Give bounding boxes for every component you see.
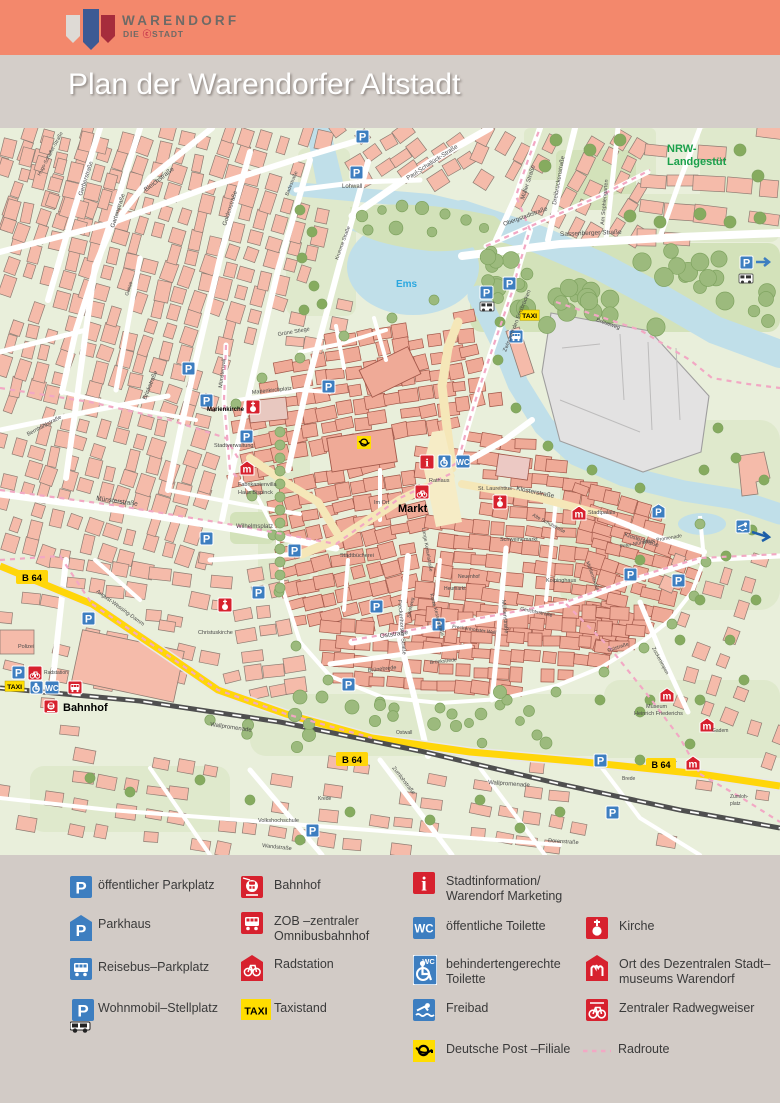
svg-text:Rathaus: Rathaus bbox=[429, 478, 450, 484]
svg-text:Stadtverwaltung: Stadtverwaltung bbox=[214, 443, 253, 449]
svg-text:Kolpinghaus: Kolpinghaus bbox=[546, 578, 577, 584]
svg-text:Stadtbücherei: Stadtbücherei bbox=[340, 553, 374, 559]
svg-text:Wilhelmsplatz: Wilhelmsplatz bbox=[236, 524, 273, 530]
svg-text:P: P bbox=[77, 1002, 88, 1021]
svg-text:Neuenhof: Neuenhof bbox=[458, 574, 480, 580]
svg-text:Krede: Krede bbox=[318, 796, 332, 802]
svg-text:Stadtpalais: Stadtpalais bbox=[588, 510, 615, 516]
svg-text:P: P bbox=[75, 879, 86, 898]
svg-text:Schweinemarkt: Schweinemarkt bbox=[500, 537, 538, 543]
svg-text:Lohwall: Lohwall bbox=[342, 184, 362, 190]
svg-text:TAXI: TAXI bbox=[244, 1006, 267, 1018]
svg-text:P: P bbox=[76, 923, 87, 940]
svg-text:Polizei: Polizei bbox=[18, 644, 34, 650]
svg-text:B 64: B 64 bbox=[22, 573, 43, 584]
svg-text:Marienkirche: Marienkirche bbox=[207, 407, 245, 413]
svg-text:Heinrich Friederichs: Heinrich Friederichs bbox=[634, 711, 683, 717]
svg-text:Fabrikantenvilla: Fabrikantenvilla bbox=[238, 482, 277, 488]
svg-text:Zumloh-: Zumloh- bbox=[730, 794, 749, 800]
svg-text:WC: WC bbox=[414, 924, 433, 936]
svg-text:B 64: B 64 bbox=[651, 760, 670, 770]
svg-text:Volkshochschule: Volkshochschule bbox=[258, 818, 299, 824]
svg-text:Im Ort: Im Ort bbox=[374, 500, 390, 506]
svg-text:Markt: Markt bbox=[398, 503, 428, 515]
svg-text:St. Laurentius: St. Laurentius bbox=[478, 486, 512, 492]
svg-text:B 64: B 64 bbox=[342, 755, 363, 766]
svg-text:NRW-: NRW- bbox=[667, 143, 697, 155]
svg-text:i: i bbox=[421, 874, 427, 895]
svg-text:Ems: Ems bbox=[396, 279, 418, 290]
svg-text:Bahnhof: Bahnhof bbox=[63, 702, 108, 714]
svg-text:Christuskirche: Christuskirche bbox=[198, 630, 233, 636]
svg-text:Haus Bispinck: Haus Bispinck bbox=[238, 490, 273, 496]
svg-text:platz: platz bbox=[730, 801, 741, 807]
svg-text:Landgestüt: Landgestüt bbox=[667, 156, 727, 168]
svg-text:Museum: Museum bbox=[646, 704, 668, 710]
svg-text:Heumarkt: Heumarkt bbox=[444, 586, 466, 592]
svg-text:Gadem: Gadem bbox=[712, 728, 728, 734]
svg-text:Radstation: Radstation bbox=[44, 670, 68, 676]
svg-text:Ostwall: Ostwall bbox=[396, 730, 412, 736]
svg-text:Brede: Brede bbox=[622, 776, 636, 782]
